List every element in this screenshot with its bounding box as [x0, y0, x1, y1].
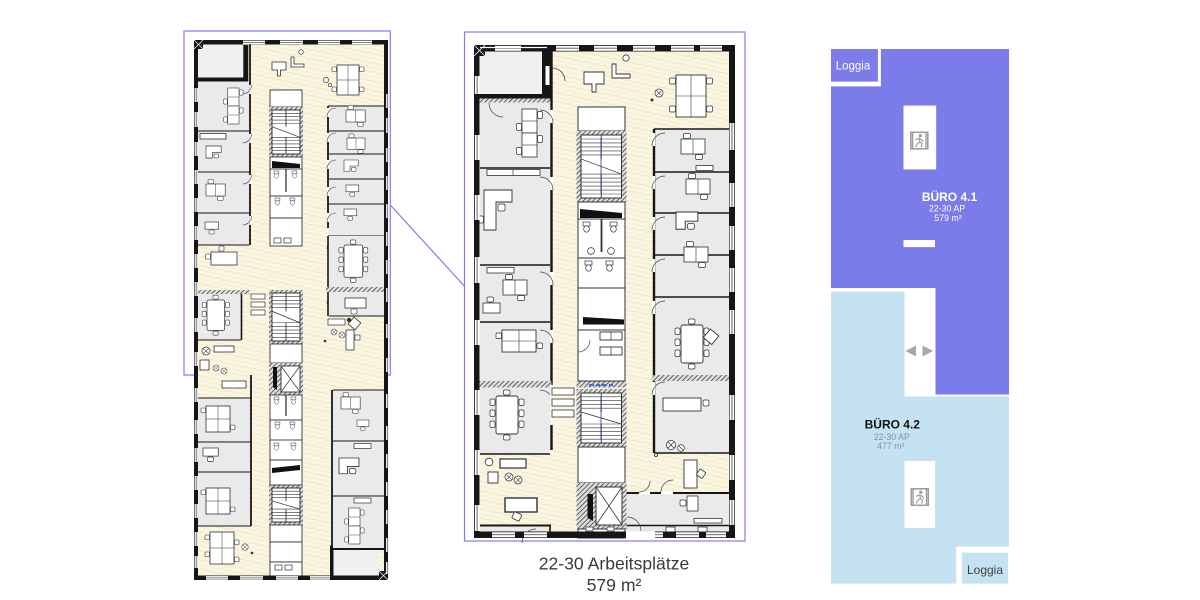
- svg-text:Loggia: Loggia: [836, 61, 871, 73]
- svg-text:Loggia: Loggia: [967, 563, 1003, 577]
- svg-text:579 m²: 579 m²: [587, 575, 642, 595]
- svg-text:BÜRO 4.1: BÜRO 4.1: [922, 189, 978, 204]
- svg-text:477 m²: 477 m²: [877, 441, 904, 451]
- svg-text:22-30 AP: 22-30 AP: [929, 203, 965, 213]
- svg-text:BÜRO 4.2: BÜRO 4.2: [865, 417, 921, 432]
- svg-text:579 m²: 579 m²: [934, 213, 961, 223]
- svg-text:22-30 Arbeitsplätze: 22-30 Arbeitsplätze: [539, 554, 690, 574]
